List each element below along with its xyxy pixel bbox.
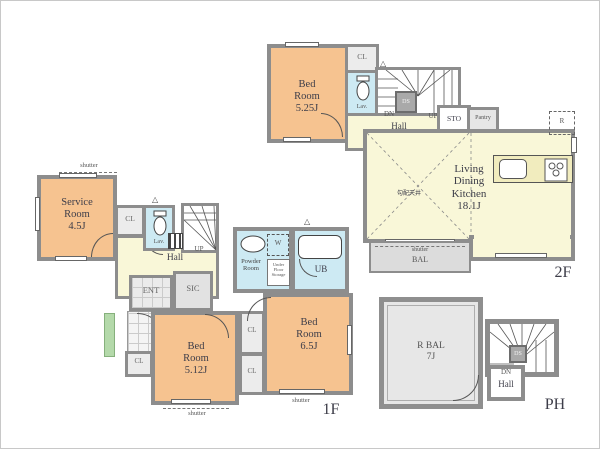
refrigerator-label: R: [549, 118, 575, 126]
under-floor-storage-label: Under Floor Storage: [267, 262, 290, 277]
sloped-ceiling-label: 勾配天井: [387, 191, 431, 198]
storage-2f-label: STO: [439, 115, 469, 123]
bedroom-b-label: Bed Room 6.5J: [279, 317, 339, 352]
window: [285, 42, 319, 47]
stove-icon: [544, 158, 568, 182]
shoe-closet-label: SIC: [175, 284, 211, 294]
lavatory-2f-label: Lav.: [347, 104, 377, 111]
floor-label-1f: 1F: [309, 401, 353, 419]
sink-icon: [239, 234, 267, 254]
unit-bath-label: UB: [307, 264, 335, 274]
floor-plan: Bed Room 5.25J CL Lav. △ DS DN UP Hall S…: [0, 0, 600, 449]
washer-label: W: [267, 240, 289, 248]
entrance-label: ENT: [131, 286, 171, 296]
closet-1f-hall-label: CL: [117, 215, 143, 223]
vent-triangle: △: [304, 218, 310, 226]
window: [35, 197, 40, 231]
bathtub-icon: [298, 235, 342, 259]
window: [495, 253, 547, 258]
service-room-label: Service Room 4.5J: [45, 197, 109, 232]
floor-label-2f: 2F: [541, 264, 585, 282]
duct-space-2f: DS: [395, 91, 417, 113]
balcony-shutter-label: shutter: [395, 247, 445, 254]
powder-room-label: Powder Room: [233, 258, 269, 273]
stairs-lines: [184, 206, 216, 250]
bedroom-2f-label: Bed Room 5.25J: [275, 79, 339, 114]
meter-box: [168, 233, 183, 249]
balcony-label: BAL: [395, 256, 445, 265]
window: [283, 137, 311, 142]
vent-triangle: △: [152, 196, 158, 204]
approach-green: [104, 313, 115, 357]
floor-label-ph: PH: [533, 396, 577, 414]
bedroom-a-label: Bed Room 5.12J: [161, 341, 231, 376]
roof-balcony-label: R BAL 7J: [399, 341, 463, 362]
closet-1f-west-label: CL: [127, 358, 151, 366]
window: [347, 325, 352, 355]
dn-label-ph: DN: [493, 369, 519, 377]
shutter-line-bedroom-a: [163, 408, 229, 409]
window: [59, 173, 97, 178]
window: [279, 389, 325, 394]
closet-mid-a-label: CL: [241, 327, 263, 335]
closet-mid-b-label: CL: [241, 368, 263, 376]
door-arc: [247, 297, 271, 321]
up-label-1f: UP: [187, 246, 211, 254]
toilet-icon: [350, 75, 376, 103]
bedroom-a-shutter-label: shutter: [175, 410, 219, 417]
closet-2f-label: CL: [347, 53, 377, 61]
service-shutter-label: shutter: [63, 162, 115, 169]
hall-ph-label: Hall: [491, 379, 521, 389]
door-marker: [571, 137, 577, 153]
duct-space-ph: DS: [509, 345, 527, 363]
window: [171, 399, 211, 404]
window: [55, 256, 87, 261]
pantry-2f-label: Pantry: [467, 115, 499, 122]
dn-label-2f: DN: [377, 111, 401, 119]
kitchen-sink: [499, 159, 527, 179]
